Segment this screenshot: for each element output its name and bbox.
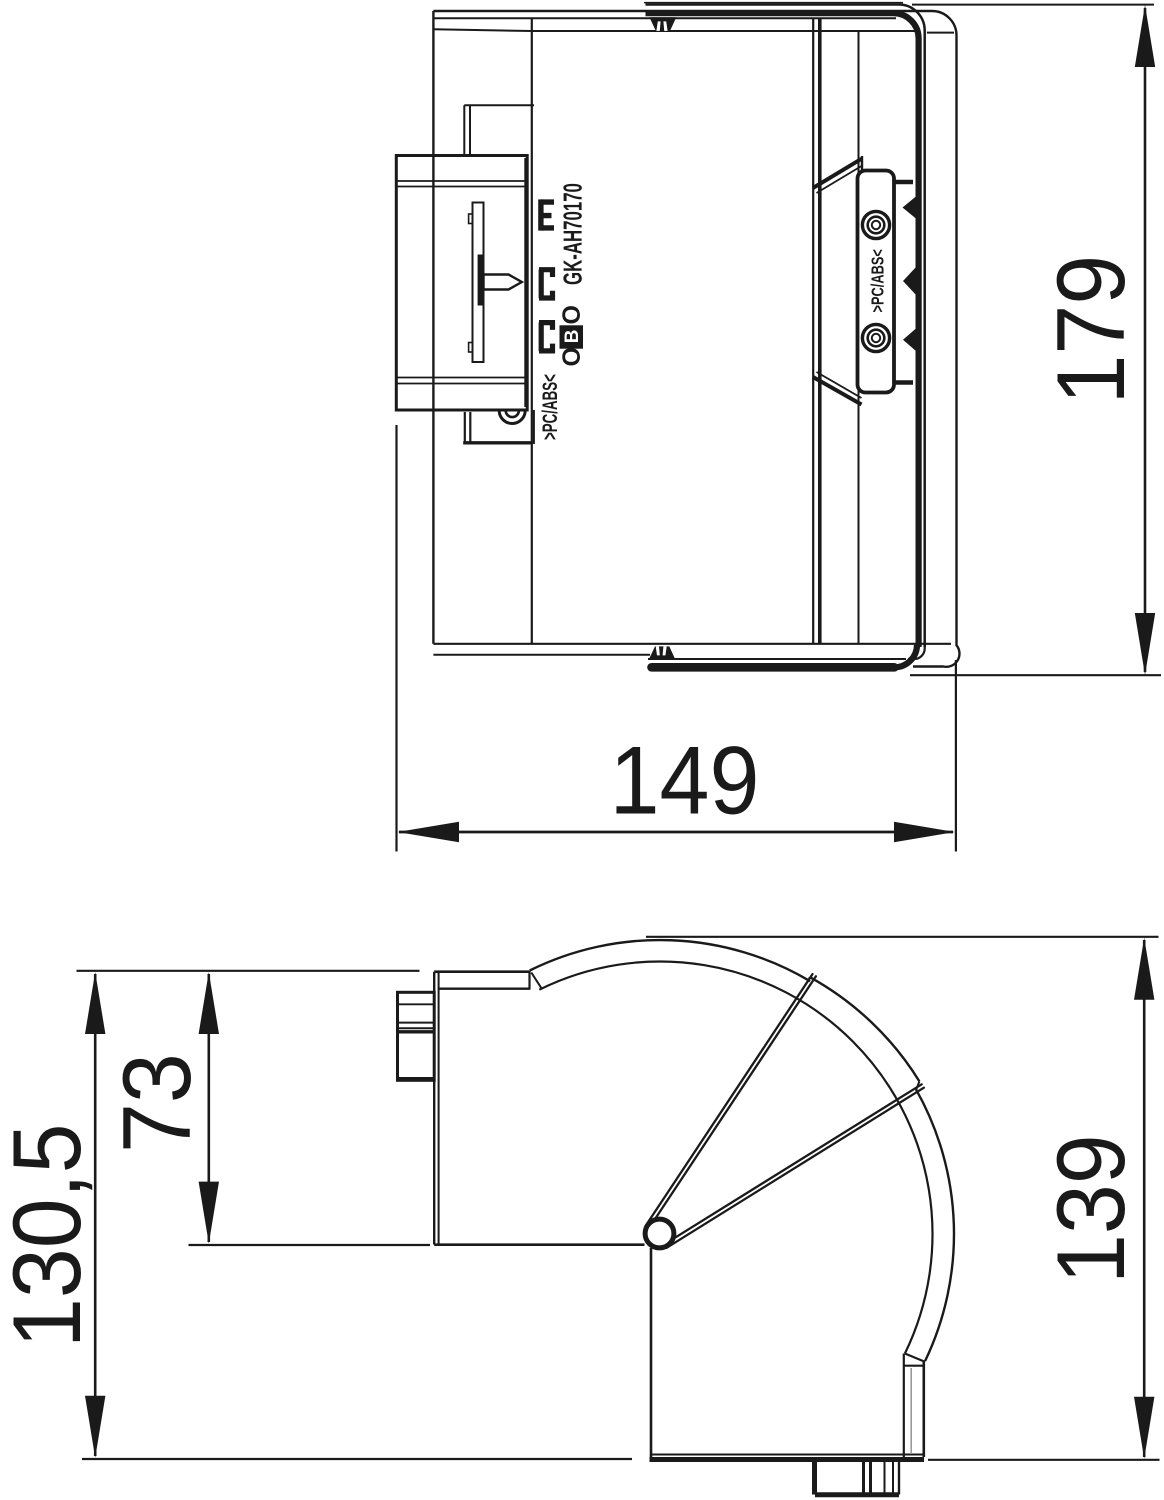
svg-text:149: 149 bbox=[610, 727, 760, 835]
svg-text:>PC/ABS<: >PC/ABS< bbox=[538, 374, 562, 440]
svg-text:O: O bbox=[558, 305, 586, 324]
svg-text:O: O bbox=[558, 347, 586, 366]
svg-text:>PC/ABS<: >PC/ABS< bbox=[869, 249, 889, 312]
svg-text:73: 73 bbox=[103, 1053, 211, 1153]
svg-text:179: 179 bbox=[1037, 255, 1145, 405]
svg-text:139: 139 bbox=[1037, 1134, 1145, 1284]
svg-text:B: B bbox=[562, 330, 583, 344]
svg-text:130,5: 130,5 bbox=[0, 1123, 101, 1348]
svg-text:GK-AH70170: GK-AH70170 bbox=[558, 183, 588, 285]
